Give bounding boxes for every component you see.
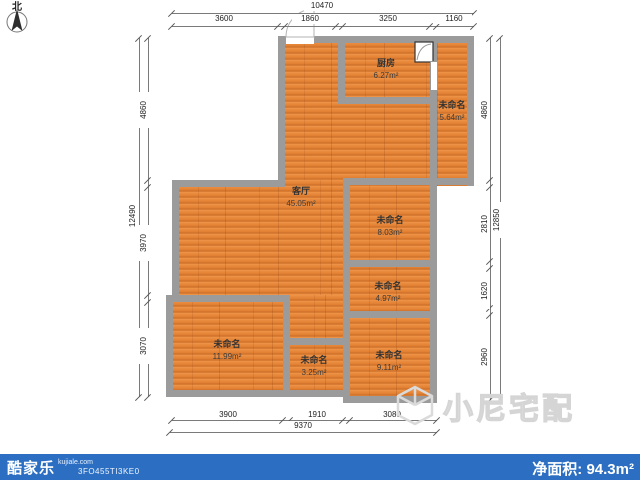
- dim-top-seg-0: 3600: [206, 14, 242, 24]
- dim-tick: [470, 23, 477, 30]
- dim-left-seg-2: 3070: [139, 328, 149, 364]
- dim-right-overall: 12850: [492, 202, 502, 238]
- plan-code: 3FO455TI3KE0: [78, 467, 140, 476]
- net-area-text: 净面积: 94.3m²: [532, 458, 634, 479]
- dim-top-overall: 10470: [304, 1, 340, 11]
- dim-left-seg-0: 4860: [139, 92, 149, 128]
- footer-bar: 酷家乐 kujiale.com 3FO455TI3KE0 净面积: 94.3m²: [0, 454, 640, 480]
- dim-tick: [433, 429, 440, 436]
- dim-bottom-seg-2: 3080: [374, 410, 410, 420]
- brand-domain: kujiale.com: [58, 459, 93, 466]
- dim-tick: [496, 397, 503, 404]
- dim-tick: [433, 417, 440, 424]
- dim-top-seg-1: 1860: [292, 14, 328, 24]
- dim-tick: [144, 394, 151, 401]
- dim-top-seg-3: 1160: [436, 14, 472, 24]
- dim-right-seg-1: 2810: [480, 206, 490, 242]
- dim-bottom-overall: 9370: [285, 421, 321, 431]
- floorplan-page: 北: [0, 0, 640, 480]
- dim-bottom-seg-1: 1910: [299, 410, 335, 420]
- dim-top-seg-2: 3250: [370, 14, 406, 24]
- dim-right-seg-2: 1620: [480, 273, 490, 309]
- dim-line-bottom-overall: [170, 432, 437, 433]
- dim-bottom-seg-0: 3900: [210, 410, 246, 420]
- dimensions: 10470 3600 1860 3250 1160 3900 1910 3080…: [0, 0, 640, 480]
- dim-right-seg-0: 4860: [480, 92, 490, 128]
- dim-line-right-segments: [490, 38, 491, 400]
- dim-tick: [486, 397, 493, 404]
- dim-tick: [135, 394, 142, 401]
- brand-logo: 酷家乐: [7, 457, 55, 478]
- dim-left-seg-1: 3970: [139, 225, 149, 261]
- dim-left-overall: 12490: [128, 198, 138, 234]
- dim-right-seg-3: 2960: [480, 339, 490, 375]
